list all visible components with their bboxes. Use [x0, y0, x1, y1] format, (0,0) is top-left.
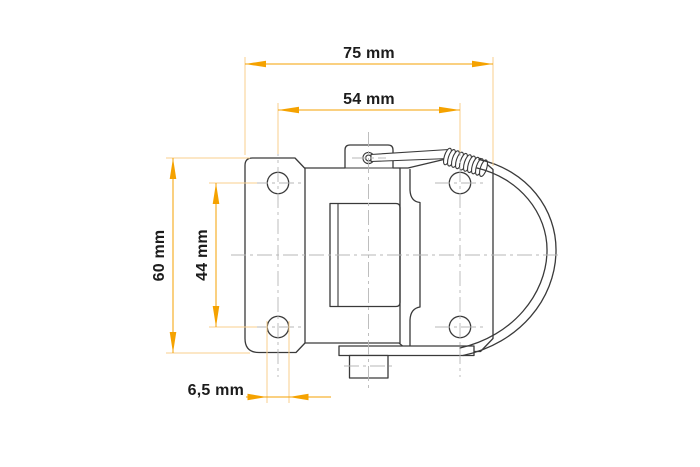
dimension-label-6-5mm: 6,5 mm: [188, 382, 244, 399]
dim-arrow-left: [289, 394, 309, 400]
dimension-label-44mm: 44 mm: [194, 229, 211, 281]
dimension-label-54mm: 54 mm: [343, 91, 395, 108]
dim-arrow-right: [472, 61, 493, 68]
latch-part: [245, 145, 556, 378]
dim-arrow-up: [170, 158, 177, 179]
dim-arrow-down: [213, 306, 220, 327]
dimension-label-75mm: 75 mm: [343, 45, 395, 62]
dim-arrow-up: [213, 183, 220, 204]
dim-arrow-down: [170, 332, 177, 353]
bottom-flange: [339, 346, 474, 356]
dim-arrow-right: [248, 394, 268, 400]
latch-dimension-drawing: 75 mm 54 mm 60 mm 44 mm 6,5 mm: [0, 0, 700, 467]
dim-arrow-left: [278, 107, 299, 114]
dim-arrow-left: [245, 61, 266, 68]
technical-drawing-canvas: 75 mm 54 mm 60 mm 44 mm 6,5 mm: [0, 0, 700, 467]
dim-arrow-right: [439, 107, 460, 114]
dimension-label-60mm: 60 mm: [151, 230, 168, 282]
